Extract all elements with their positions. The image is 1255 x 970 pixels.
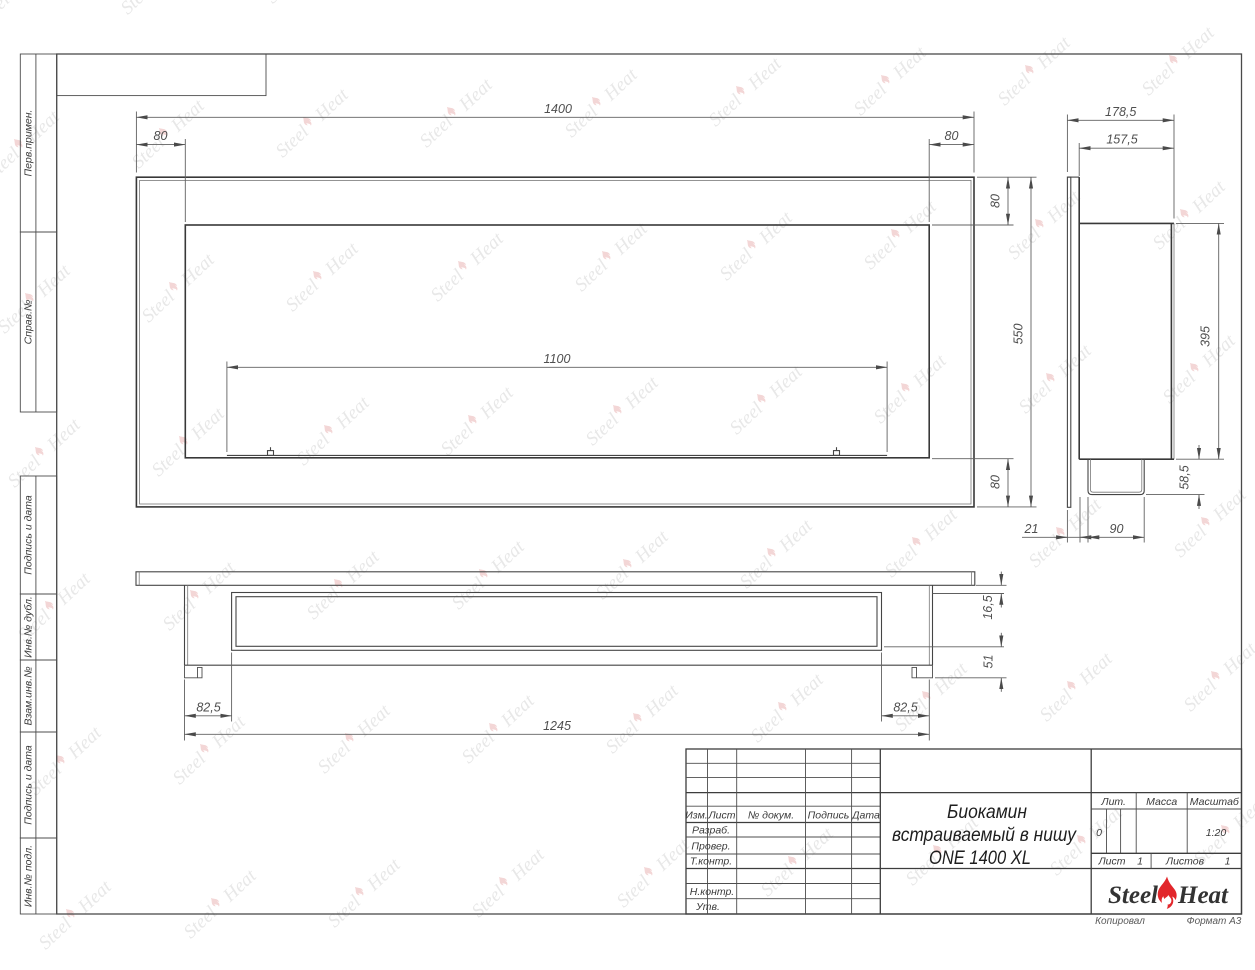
- svg-text:встраиваемый в нишу: встраиваемый в нишу: [892, 825, 1077, 846]
- svg-text:Steel: Steel: [860, 233, 901, 274]
- svg-text:Heat: Heat: [899, 196, 942, 238]
- svg-text:Steel: Steel: [757, 860, 798, 901]
- svg-text:ONE 1400 XL: ONE 1400 XL: [929, 848, 1031, 869]
- svg-text:178,5: 178,5: [1105, 105, 1136, 119]
- svg-text:1: 1: [1137, 856, 1143, 868]
- svg-text:Steel: Steel: [272, 121, 313, 162]
- svg-text:Steel: Steel: [1170, 521, 1211, 562]
- svg-text:Steel: Steel: [1180, 675, 1221, 716]
- svg-text:Heat: Heat: [311, 84, 354, 126]
- svg-text:Heat: Heat: [600, 64, 643, 106]
- svg-text:Подпись и дата: Подпись и дата: [23, 495, 35, 575]
- svg-text:Heat: Heat: [342, 546, 385, 588]
- svg-text:Heat: Heat: [53, 568, 96, 610]
- svg-text:Heat: Heat: [1033, 32, 1076, 74]
- svg-text:Heat: Heat: [497, 690, 540, 732]
- svg-text:Heat: Heat: [332, 392, 375, 434]
- svg-text:Steel: Steel: [736, 552, 777, 593]
- svg-text:Heat: Heat: [786, 669, 829, 711]
- svg-text:Листов: Листов: [1165, 856, 1205, 868]
- svg-text:Steel: Steel: [613, 871, 654, 912]
- svg-text:Steel: Steel: [1036, 685, 1077, 726]
- svg-text:80: 80: [989, 475, 1003, 489]
- svg-text:Heat: Heat: [889, 42, 932, 84]
- svg-text:Подпись: Подпись: [808, 810, 850, 822]
- svg-text:Heat: Heat: [1219, 638, 1255, 680]
- svg-text:Steel: Steel: [1138, 59, 1179, 100]
- svg-text:Heat: Heat: [219, 865, 262, 907]
- svg-text:Н.контр.: Н.контр.: [690, 886, 734, 898]
- svg-text:21: 21: [1024, 522, 1039, 536]
- svg-text:Heat: Heat: [64, 722, 107, 764]
- svg-text:Heat: Heat: [177, 249, 220, 291]
- svg-text:Heat: Heat: [1177, 882, 1229, 909]
- svg-text:Утв.: Утв.: [695, 901, 720, 913]
- svg-text:Heat: Heat: [755, 207, 798, 249]
- svg-text:Steel: Steel: [716, 244, 757, 285]
- svg-text:82,5: 82,5: [893, 700, 917, 714]
- svg-text:Steel: Steel: [582, 409, 623, 450]
- svg-text:16,5: 16,5: [981, 595, 995, 619]
- svg-text:Steel: Steel: [747, 706, 788, 747]
- svg-text:1:20: 1:20: [1206, 827, 1227, 839]
- svg-text:80: 80: [154, 129, 168, 143]
- svg-text:1245: 1245: [543, 719, 571, 733]
- svg-text:Heat: Heat: [33, 260, 76, 302]
- svg-text:Heat: Heat: [507, 844, 550, 886]
- svg-text:Масса: Масса: [1146, 796, 1177, 808]
- svg-text:Изм.: Изм.: [685, 810, 707, 822]
- svg-text:Steel: Steel: [148, 440, 189, 481]
- svg-text:Steel: Steel: [293, 429, 334, 470]
- svg-text:Копировал: Копировал: [1095, 916, 1145, 927]
- svg-text:Heat: Heat: [466, 228, 509, 270]
- svg-text:Справ.№: Справ.№: [23, 300, 35, 345]
- svg-text:Steel: Steel: [602, 717, 643, 758]
- svg-text:Провер.: Провер.: [691, 841, 730, 853]
- svg-text:Steel: Steel: [282, 275, 323, 316]
- svg-text:Steel: Steel: [870, 387, 911, 428]
- svg-text:Steel: Steel: [303, 583, 344, 624]
- svg-text:Steel: Steel: [0, 0, 14, 30]
- svg-text:157,5: 157,5: [1106, 133, 1137, 147]
- svg-text:Heat: Heat: [43, 414, 86, 456]
- svg-text:Heat: Heat: [187, 403, 230, 445]
- svg-text:Steel: Steel: [592, 563, 633, 604]
- svg-text:Steel: Steel: [35, 913, 76, 954]
- svg-text:Heat: Heat: [476, 382, 519, 424]
- svg-text:Лист: Лист: [707, 810, 735, 822]
- svg-text:Steel: Steel: [458, 727, 499, 768]
- svg-text:Перв.примен.: Перв.примен.: [23, 110, 35, 177]
- svg-text:Инв.№ дубл.: Инв.№ дубл.: [23, 596, 35, 658]
- svg-text:Steel: Steel: [448, 573, 489, 614]
- svg-text:Steel: Steel: [705, 90, 746, 131]
- svg-text:Подпись и дата: Подпись и дата: [23, 745, 35, 825]
- svg-text:Steel: Steel: [881, 541, 922, 582]
- svg-text:Heat: Heat: [208, 711, 251, 753]
- svg-text:550: 550: [1012, 324, 1026, 345]
- svg-text:Heat: Heat: [920, 504, 963, 546]
- svg-text:Heat: Heat: [1054, 340, 1097, 382]
- svg-text:Heat: Heat: [930, 658, 973, 700]
- svg-text:Heat: Heat: [744, 53, 787, 95]
- svg-text:Heat: Heat: [1188, 176, 1231, 218]
- svg-text:Лист: Лист: [1097, 856, 1125, 868]
- svg-text:1: 1: [1225, 856, 1231, 868]
- svg-text:Heat: Heat: [652, 834, 695, 876]
- svg-text:1100: 1100: [544, 352, 571, 366]
- svg-text:Взам.инв.№: Взам.инв.№: [23, 666, 35, 725]
- svg-text:Heat: Heat: [1209, 484, 1252, 526]
- svg-text:Heat: Heat: [353, 700, 396, 742]
- svg-text:Steel: Steel: [138, 286, 179, 327]
- svg-text:Steel: Steel: [1004, 223, 1045, 264]
- svg-text:Steel: Steel: [4, 451, 45, 492]
- svg-text:Steel: Steel: [180, 902, 221, 943]
- svg-text:Steel: Steel: [262, 0, 303, 8]
- svg-text:80: 80: [989, 194, 1003, 208]
- svg-text:Steel: Steel: [1015, 377, 1056, 418]
- svg-text:80: 80: [945, 129, 959, 143]
- svg-text:Steel: Steel: [1149, 213, 1190, 254]
- svg-text:58,5: 58,5: [1178, 465, 1192, 489]
- svg-text:Т.контр.: Т.контр.: [690, 856, 732, 868]
- svg-text:Биокамин: Биокамин: [947, 802, 1027, 823]
- svg-text:Steel: Steel: [994, 69, 1035, 110]
- svg-text:Heat: Heat: [1064, 494, 1107, 536]
- svg-text:Heat: Heat: [321, 238, 364, 280]
- svg-text:Heat: Heat: [1177, 22, 1220, 64]
- svg-text:Heat: Heat: [455, 74, 498, 116]
- svg-text:Steel: Steel: [159, 594, 200, 635]
- svg-text:Steel: Steel: [169, 748, 210, 789]
- svg-text:Масштаб: Масштаб: [1190, 796, 1240, 808]
- svg-text:Steel: Steel: [468, 881, 509, 922]
- svg-text:51: 51: [982, 655, 996, 669]
- svg-text:Steel: Steel: [437, 419, 478, 460]
- svg-text:Steel: Steel: [850, 79, 891, 120]
- svg-text:Инв.№ подл.: Инв.№ подл.: [23, 845, 35, 907]
- svg-text:Heat: Heat: [363, 854, 406, 896]
- svg-text:Разраб.: Разраб.: [692, 825, 730, 837]
- svg-text:Steel: Steel: [324, 891, 365, 932]
- svg-text:Лит.: Лит.: [1100, 796, 1126, 808]
- svg-text:Steel: Steel: [117, 0, 158, 19]
- svg-text:Steel: Steel: [726, 398, 767, 439]
- svg-text:Heat: Heat: [167, 95, 210, 137]
- svg-text:Heat: Heat: [796, 823, 839, 865]
- svg-text:Heat: Heat: [1075, 648, 1118, 690]
- svg-text:90: 90: [1110, 522, 1124, 536]
- svg-text:0: 0: [1096, 827, 1102, 839]
- svg-text:82,5: 82,5: [196, 700, 220, 714]
- svg-text:Heat: Heat: [74, 876, 117, 918]
- svg-text:Steel: Steel: [1159, 367, 1200, 408]
- svg-text:395: 395: [1199, 326, 1213, 347]
- svg-text:Heat: Heat: [775, 515, 818, 557]
- svg-text:Steel: Steel: [427, 265, 468, 306]
- svg-text:Дата: Дата: [851, 810, 880, 822]
- svg-text:1400: 1400: [544, 102, 572, 116]
- svg-text:Формат A3: Формат A3: [1187, 916, 1242, 927]
- svg-text:№ докум.: № докум.: [748, 810, 794, 822]
- svg-text:Heat: Heat: [641, 680, 684, 722]
- svg-text:Steel: Steel: [571, 255, 612, 296]
- svg-text:Heat: Heat: [631, 526, 674, 568]
- svg-text:Steel: Steel: [1108, 882, 1158, 909]
- svg-text:Steel: Steel: [314, 737, 355, 778]
- svg-text:Heat: Heat: [621, 372, 664, 414]
